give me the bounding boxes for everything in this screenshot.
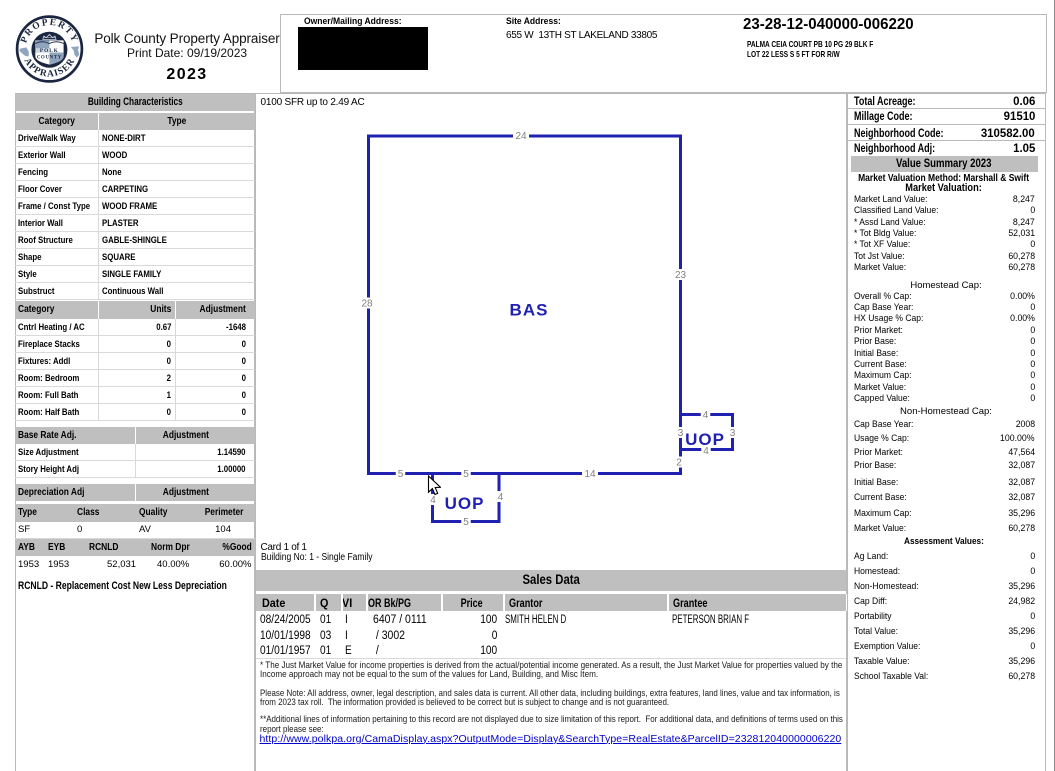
svg-text:5: 5 <box>398 469 404 480</box>
svg-text:COUNTY: COUNTY <box>37 56 62 61</box>
svg-text:4: 4 <box>703 446 709 457</box>
svg-text:4: 4 <box>498 492 504 503</box>
svg-text:28: 28 <box>361 299 373 310</box>
svg-text:5: 5 <box>463 517 469 528</box>
svg-text:23: 23 <box>675 270 687 281</box>
svg-text:4: 4 <box>430 495 436 506</box>
svg-text:5: 5 <box>463 469 469 480</box>
svg-text:4: 4 <box>703 410 709 421</box>
svg-text:2: 2 <box>676 458 682 469</box>
svg-text:3: 3 <box>730 428 736 439</box>
svg-text:BAS: BAS <box>510 301 549 320</box>
svg-text:3: 3 <box>678 428 684 439</box>
svg-text:24: 24 <box>515 131 527 142</box>
svg-text:UOP: UOP <box>445 494 485 513</box>
svg-text:POLK: POLK <box>40 48 59 54</box>
svg-text:14: 14 <box>584 469 596 480</box>
